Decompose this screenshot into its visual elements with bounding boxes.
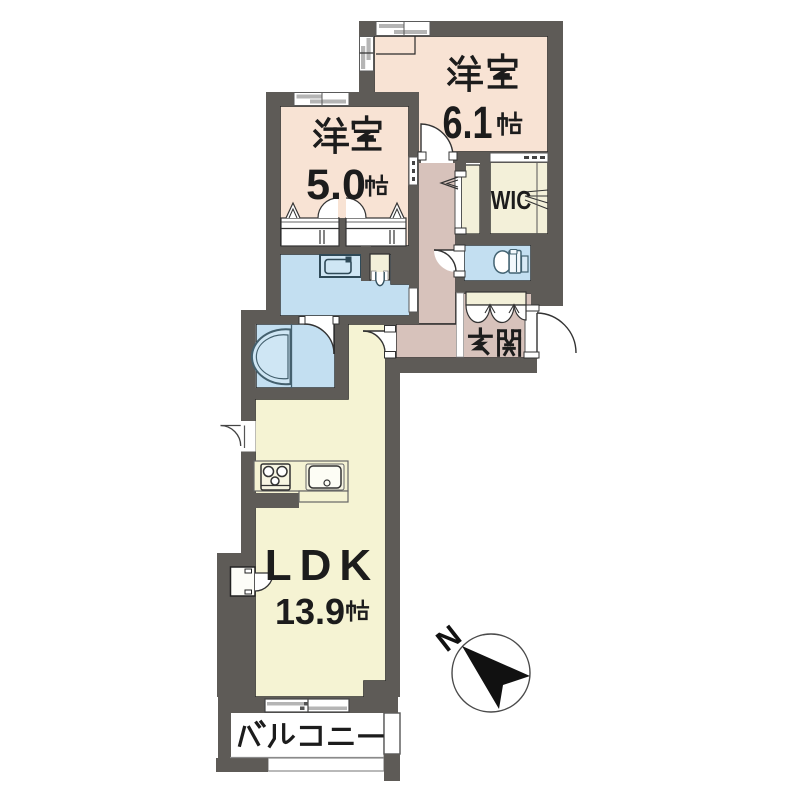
svg-text:LDK: LDK — [265, 541, 379, 590]
svg-text:WIC: WIC — [491, 186, 531, 215]
svg-text:13.9: 13.9 — [275, 591, 345, 632]
svg-text:5.0: 5.0 — [306, 161, 366, 209]
svg-text:6.1: 6.1 — [442, 97, 492, 148]
